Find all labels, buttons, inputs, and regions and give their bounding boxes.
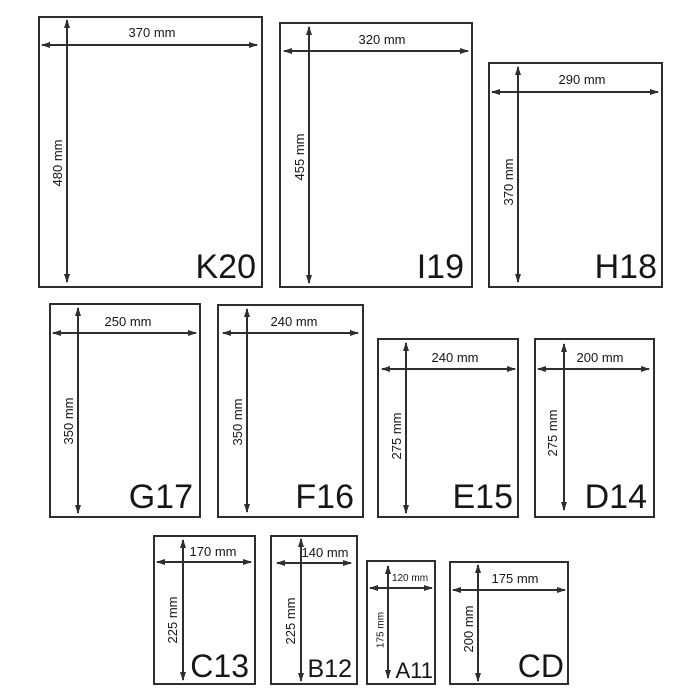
height-dimension-label: 455 mm <box>293 134 307 181</box>
height-dimension-arrow <box>517 67 519 282</box>
envelope-name: D14 <box>585 480 647 514</box>
width-dimension-arrow <box>157 561 251 563</box>
width-dimension-label: 290 mm <box>559 73 606 87</box>
width-dimension-arrow <box>284 50 468 52</box>
width-dimension-label: 370 mm <box>129 26 176 40</box>
envelope-name: A11 <box>395 660 433 682</box>
width-dimension-arrow <box>538 368 649 370</box>
width-dimension-label: 250 mm <box>105 315 152 329</box>
width-dimension-arrow <box>382 368 515 370</box>
envelope-name: K20 <box>196 250 257 284</box>
height-dimension-arrow <box>308 27 310 283</box>
width-dimension-arrow <box>370 587 432 589</box>
width-dimension-arrow <box>277 562 351 564</box>
envelope-panel-g17: 250 mm 350 mm G17 <box>49 303 201 518</box>
height-dimension-label: 275 mm <box>390 413 404 460</box>
envelope-panel-a11: 120 mm 175 mm A11 <box>366 560 436 685</box>
width-dimension-label: 120 mm <box>392 573 428 584</box>
envelope-size-diagram: 370 mm 480 mm K20 320 mm 455 mm I19 290 … <box>0 0 700 700</box>
height-dimension-arrow <box>300 539 302 681</box>
envelope-panel-k20: 370 mm 480 mm K20 <box>38 16 263 288</box>
height-dimension-arrow <box>387 566 389 678</box>
width-dimension-label: 200 mm <box>577 351 624 365</box>
width-dimension-arrow <box>223 332 358 334</box>
envelope-name: I19 <box>417 250 464 284</box>
envelope-panel-i19: 320 mm 455 mm I19 <box>279 22 473 288</box>
envelope-name: H18 <box>595 250 657 284</box>
envelope-panel-b12: 140 mm 225 mm B12 <box>270 535 358 685</box>
height-dimension-label: 370 mm <box>502 159 516 206</box>
height-dimension-label: 350 mm <box>231 399 245 446</box>
envelope-panel-cd: 175 mm 200 mm CD <box>449 561 569 685</box>
height-dimension-arrow <box>77 308 79 513</box>
envelope-panel-f16: 240 mm 350 mm F16 <box>217 304 364 518</box>
height-dimension-arrow <box>477 565 479 681</box>
height-dimension-label: 480 mm <box>51 140 65 187</box>
width-dimension-label: 240 mm <box>432 351 479 365</box>
envelope-panel-h18: 290 mm 370 mm H18 <box>488 62 663 288</box>
width-dimension-label: 170 mm <box>190 545 237 559</box>
envelope-panel-d14: 200 mm 275 mm D14 <box>534 338 655 518</box>
width-dimension-arrow <box>453 589 565 591</box>
width-dimension-label: 140 mm <box>302 546 349 560</box>
height-dimension-label: 175 mm <box>376 612 387 648</box>
height-dimension-label: 275 mm <box>546 410 560 457</box>
width-dimension-label: 240 mm <box>271 315 318 329</box>
height-dimension-label: 225 mm <box>284 598 298 645</box>
height-dimension-arrow <box>246 309 248 512</box>
envelope-panel-e15: 240 mm 275 mm E15 <box>377 338 519 518</box>
height-dimension-label: 200 mm <box>462 606 476 653</box>
width-dimension-arrow <box>53 332 196 334</box>
width-dimension-label: 175 mm <box>492 572 539 586</box>
envelope-name: B12 <box>308 657 352 682</box>
width-dimension-label: 320 mm <box>359 33 406 47</box>
width-dimension-arrow <box>42 44 257 46</box>
envelope-name: F16 <box>295 480 354 514</box>
height-dimension-arrow <box>66 20 68 282</box>
envelope-name: CD <box>518 650 564 682</box>
envelope-panel-c13: 170 mm 225 mm C13 <box>153 535 256 685</box>
envelope-name: E15 <box>453 480 514 514</box>
height-dimension-label: 350 mm <box>62 398 76 445</box>
width-dimension-arrow <box>492 91 658 93</box>
envelope-name: C13 <box>190 650 249 682</box>
height-dimension-label: 225 mm <box>166 597 180 644</box>
envelope-name: G17 <box>129 480 193 514</box>
